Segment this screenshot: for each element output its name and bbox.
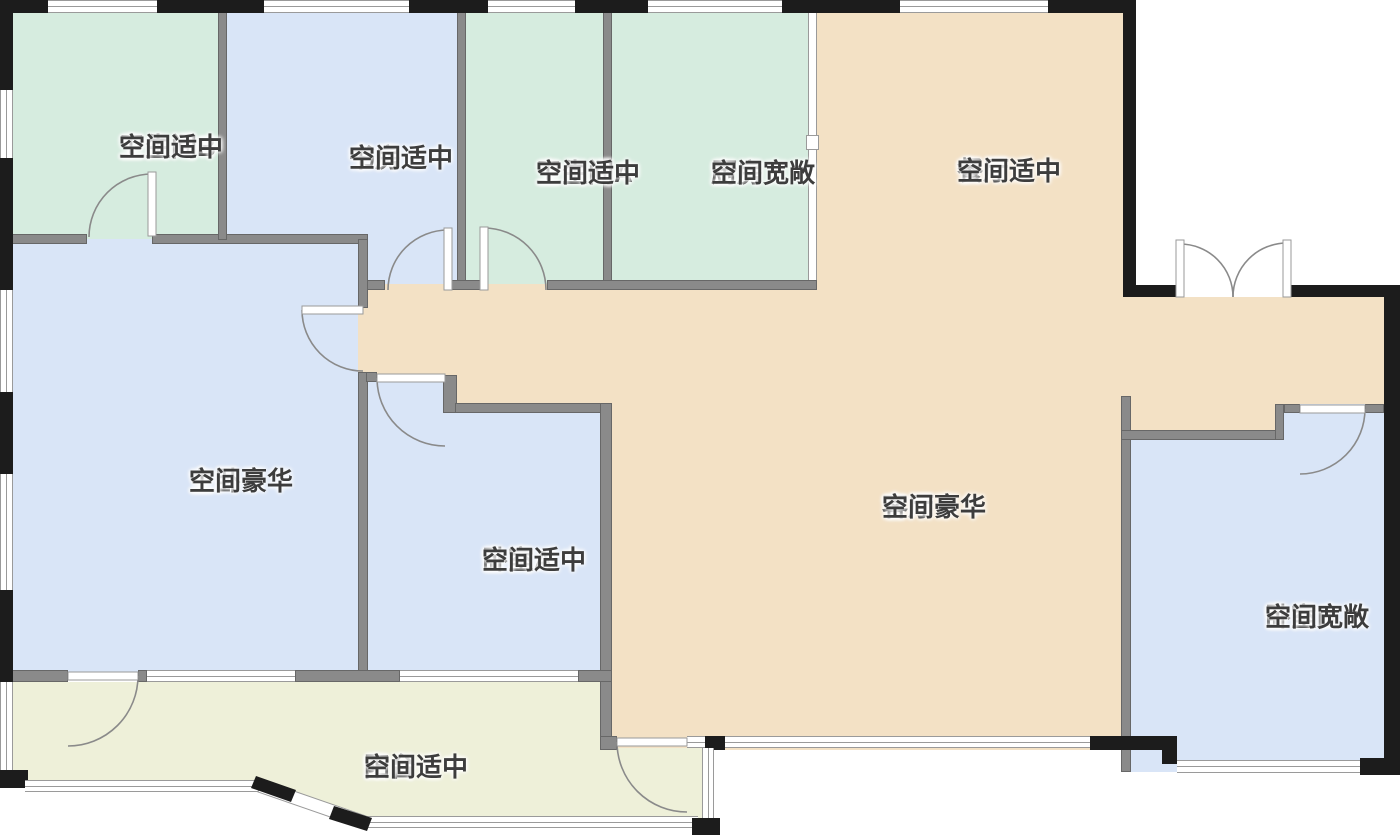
room-floor-living (607, 284, 1127, 750)
exterior-wall (0, 770, 28, 788)
room-floor-bathroom-a (457, 13, 612, 285)
exterior-wall (409, 0, 488, 13)
exterior-wall (1360, 758, 1400, 775)
door-arc (68, 676, 138, 746)
wall (358, 239, 368, 308)
window (725, 736, 1090, 748)
exterior-wall (782, 0, 900, 13)
wall (295, 670, 400, 682)
window (362, 816, 698, 828)
room-condition: 空间适中 (957, 156, 1061, 187)
exterior-wall (575, 0, 648, 13)
window (702, 748, 714, 822)
window (0, 682, 13, 775)
hallway-floor (358, 284, 612, 382)
room-condition: 空间豪华 (882, 492, 986, 523)
window (687, 736, 705, 748)
entrance-door-arc (1180, 244, 1233, 297)
window (488, 0, 575, 13)
room-floor-dining (813, 13, 1123, 297)
exterior-wall (1162, 750, 1177, 764)
wall (366, 372, 377, 382)
wall (603, 10, 612, 289)
wall (600, 736, 617, 750)
window (1177, 760, 1360, 773)
exterior-wall (0, 158, 13, 290)
window (264, 0, 409, 13)
wall (138, 670, 147, 682)
window (0, 90, 13, 158)
glass-partition-jamb (806, 135, 819, 150)
room-condition: 空间适中 (364, 752, 468, 783)
exterior-wall (0, 590, 13, 682)
window-angled (258, 780, 366, 828)
wall (1365, 404, 1384, 413)
room-floor-master (13, 239, 368, 680)
door-arc (617, 742, 687, 812)
entrance-door-leaf (1283, 240, 1291, 297)
room-condition: 空间适中 (349, 143, 453, 174)
exterior-wall (692, 818, 720, 835)
window (25, 780, 265, 792)
room-condition: 空间适中 (482, 545, 586, 576)
room-floor-bedroom-a (368, 375, 612, 680)
exterior-wall (157, 0, 264, 13)
glass-partition (808, 13, 817, 289)
wall (600, 403, 612, 750)
wall (457, 10, 466, 289)
room-floor-kitchen (608, 13, 817, 285)
exterior-wall (1090, 736, 1177, 750)
wall (152, 234, 368, 244)
room-condition: 空间豪华 (189, 466, 293, 497)
wall (1121, 396, 1131, 772)
window (48, 0, 157, 13)
exterior-wall (1384, 287, 1400, 775)
entrance-door-arc (1233, 243, 1287, 297)
window (0, 290, 13, 392)
wall (1284, 404, 1300, 413)
window (900, 0, 1048, 13)
wall (1121, 430, 1284, 440)
floor-plan: 卫生间B 空间适中 书房 空间适中 卫生间A 空间适中 厨房 空间宽敞 餐厅 空… (0, 0, 1400, 838)
wall (10, 670, 68, 682)
window (400, 670, 578, 682)
wall (10, 234, 87, 244)
window (648, 0, 782, 13)
wall (448, 280, 484, 290)
exterior-wall (1123, 0, 1136, 297)
wall (455, 403, 612, 413)
exterior-wall (1136, 285, 1176, 297)
exterior-wall (0, 0, 13, 90)
room-floor-bathroom-b (13, 13, 227, 239)
room-condition: 空间宽敞 (711, 158, 815, 189)
wall (218, 10, 227, 240)
room-condition: 空间宽敞 (1265, 602, 1369, 633)
wall (578, 670, 612, 682)
wall (547, 280, 817, 290)
wall (358, 372, 368, 682)
wall (1275, 404, 1284, 440)
window (0, 474, 13, 590)
room-condition: 空间适中 (536, 158, 640, 189)
room-condition: 空间适中 (119, 132, 223, 163)
exterior-wall (0, 392, 13, 474)
entrance-door-leaf (1176, 240, 1184, 297)
window (147, 670, 295, 682)
